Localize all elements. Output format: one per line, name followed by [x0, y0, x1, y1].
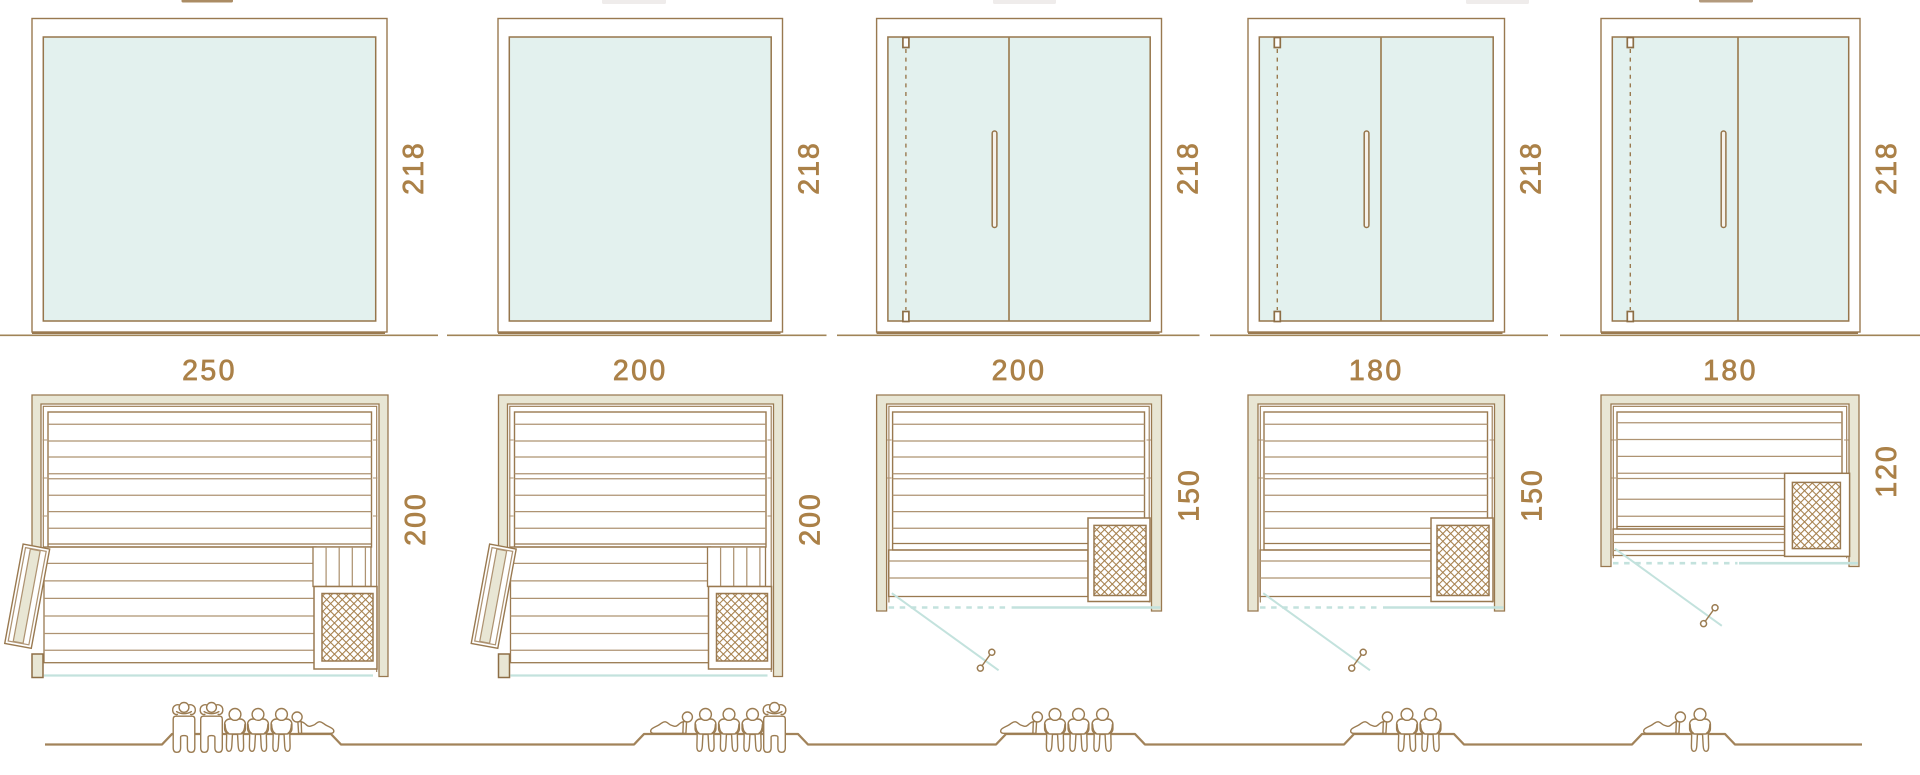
svg-text:200: 200 — [400, 492, 432, 546]
svg-text:150: 150 — [1174, 468, 1206, 522]
svg-text:218: 218 — [794, 141, 826, 195]
svg-text:200: 200 — [795, 492, 827, 546]
svg-text:120: 120 — [1871, 444, 1903, 498]
svg-text:218: 218 — [1173, 141, 1205, 195]
svg-text:180: 180 — [1703, 355, 1758, 387]
svg-text:218: 218 — [1516, 141, 1548, 195]
svg-text:218: 218 — [398, 141, 430, 195]
svg-text:150: 150 — [1517, 468, 1549, 522]
svg-text:250: 250 — [182, 355, 237, 387]
svg-text:200: 200 — [992, 355, 1047, 387]
svg-text:180: 180 — [1349, 355, 1404, 387]
svg-text:218: 218 — [1871, 141, 1903, 195]
svg-text:200: 200 — [613, 355, 668, 387]
